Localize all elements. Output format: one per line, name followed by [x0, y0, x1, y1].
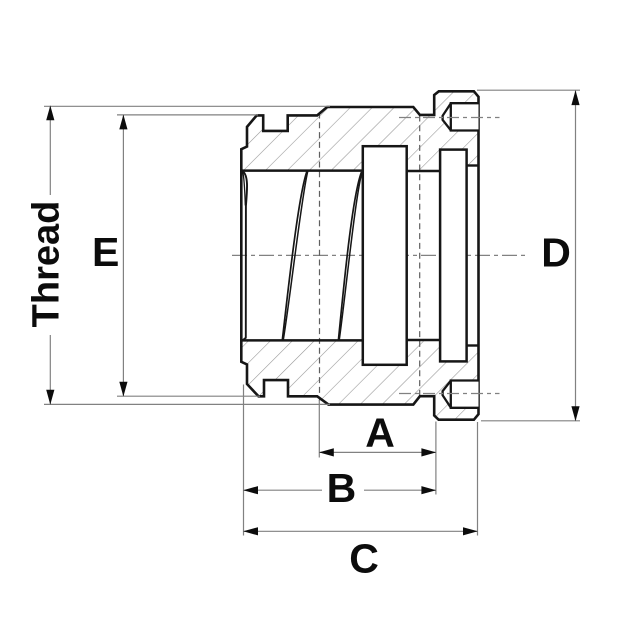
svg-text:C: C — [349, 536, 379, 582]
svg-text:D: D — [541, 230, 571, 276]
svg-text:B: B — [327, 465, 357, 511]
svg-text:E: E — [92, 229, 119, 275]
svg-text:A: A — [365, 410, 395, 456]
svg-text:Thread: Thread — [26, 201, 68, 328]
